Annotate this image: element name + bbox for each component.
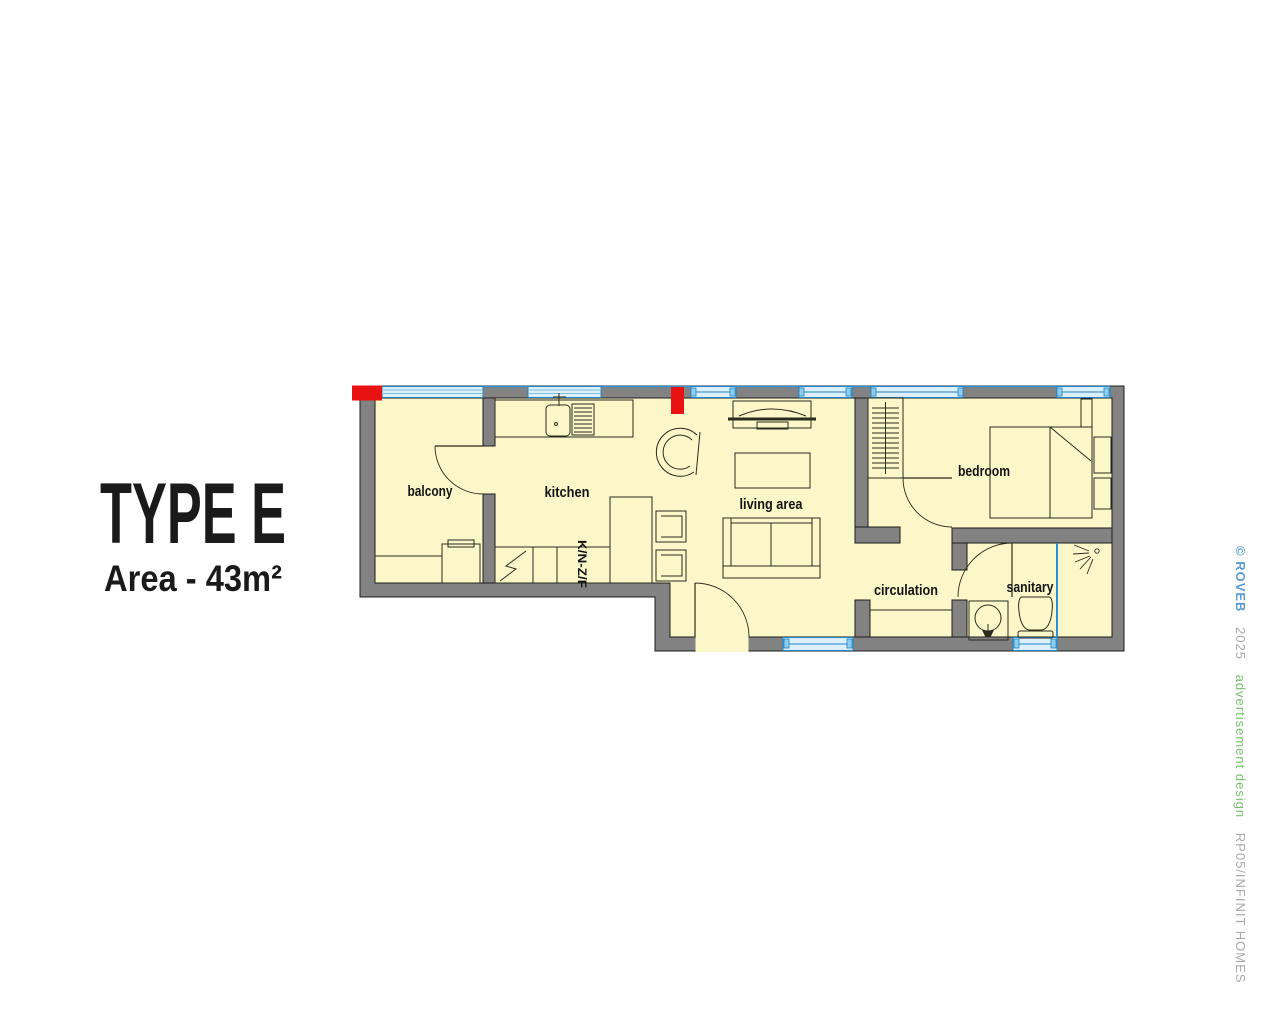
floorplan-canvas: balcony kitchen K/N-Z/F living area bedr… [0, 0, 1280, 1024]
title-block: TYPE E Area - 43m² [100, 466, 286, 599]
watermark-design-credit: advertisement design [1233, 675, 1248, 819]
page-title: TYPE E [100, 466, 286, 562]
watermark-project-code: RP05/INFINIT HOMES [1233, 833, 1248, 984]
wall-washbasin-pier [952, 600, 967, 637]
wall-bedroom-sanitary [952, 528, 1112, 543]
wall-living-bedroom [855, 398, 868, 543]
label-living-area: living area [740, 497, 804, 513]
watermark-copyright: © ROVEB [1233, 546, 1248, 612]
wall-wardrobe-bottom [855, 527, 900, 543]
window-kitchen [528, 387, 601, 398]
watermark-year: 2025 [1233, 627, 1248, 660]
watermark: © ROVEB 2025 advertisement design RP05/I… [1233, 546, 1248, 983]
page-subtitle-area: Area - 43m² [104, 558, 282, 599]
label-sanitary: sanitary [1007, 580, 1054, 596]
label-circulation: circulation [874, 583, 938, 599]
wall-circulation-pier [855, 600, 870, 637]
floorplan-page: balcony kitchen K/N-Z/F living area bedr… [0, 0, 1280, 1024]
wall-balcony-kitchen-lower [483, 494, 495, 583]
wall-balcony-kitchen-upper [483, 398, 495, 446]
label-kitchen: kitchen [545, 485, 590, 501]
red-section-marker-mid [671, 387, 684, 414]
wall-sanitary-door-jamb [952, 543, 967, 570]
red-section-marker-left [352, 386, 382, 401]
label-bedroom: bedroom [958, 464, 1010, 480]
entry-doorway-opening [696, 636, 749, 652]
label-balcony: balcony [408, 484, 453, 500]
window-balcony [382, 387, 483, 398]
label-kitchen-units-code: K/N-Z/F [575, 540, 589, 588]
